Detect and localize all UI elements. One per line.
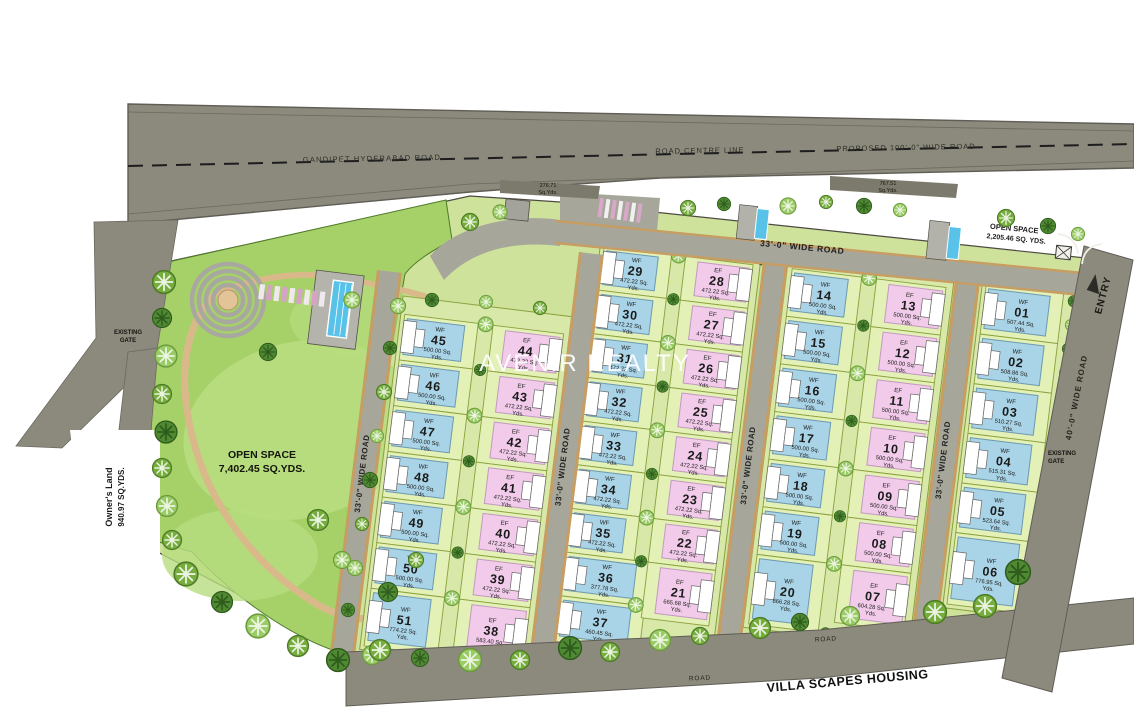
tree-icon (153, 309, 172, 328)
swimming-pool (308, 270, 365, 349)
plot-number: 18 (792, 478, 809, 494)
building-footprint (765, 581, 776, 600)
building-footprint (914, 346, 925, 365)
tree-icon (461, 213, 478, 230)
site-plan-canvas: OPEN SPACE7,402.45 SQ.YDS.WF45500.00 Sq.… (0, 0, 1134, 728)
plot-number: 22 (676, 536, 693, 552)
plot-number: 36 (597, 570, 614, 586)
building-footprint (587, 478, 598, 497)
centre-line-label: ROAD CENTRE LINE (655, 145, 745, 156)
owners-land-label: Owner's Land (104, 467, 114, 526)
pool-structure (926, 220, 962, 261)
plot-number: 21 (670, 585, 687, 601)
tree-icon (308, 510, 329, 531)
building-footprint (778, 475, 789, 494)
wedge-right (830, 176, 958, 198)
building-footprint (772, 522, 783, 541)
plot-number: 46 (425, 378, 442, 394)
plot-number: 40 (495, 526, 512, 542)
plot-number: 44 (517, 343, 534, 359)
tree-icon (493, 205, 507, 219)
pool-structure (736, 205, 769, 242)
plot-number: 05 (989, 504, 1006, 520)
tree-icon (246, 614, 270, 638)
svg-text:GATE: GATE (120, 338, 136, 344)
building-footprint (521, 481, 532, 500)
tree-icon (1040, 218, 1055, 233)
plot-number: 39 (489, 572, 506, 588)
building-footprint (920, 299, 931, 318)
tree-icon (153, 385, 172, 404)
plot-number: 30 (622, 307, 639, 323)
open-space-park-label: OPEN SPACE (228, 449, 296, 461)
tree-icon (893, 203, 906, 216)
open-space-park-area: 7,402.45 SQ.YDS. (219, 463, 305, 475)
plot-number: 14 (816, 288, 833, 304)
plot-04: WF04515.31 Sq.Yds. (963, 437, 1032, 485)
plot-21: EF21665.68 Sq.Yds. (655, 568, 715, 620)
plot-number: 01 (1013, 305, 1030, 321)
tree-icon (533, 301, 546, 314)
tree-icon (691, 627, 708, 644)
building-footprint (597, 391, 608, 410)
tree-icon (856, 198, 871, 213)
clubhouse-structure (504, 199, 530, 221)
tree-icon (717, 197, 730, 210)
building-footprint (963, 560, 974, 579)
building-footprint (790, 379, 801, 398)
owners-land: Owner's Land940.97 SQ.YDS. (70, 430, 160, 568)
tree-icon (347, 560, 362, 575)
plot-51: WF51774.22 Sq.Yds. (365, 592, 431, 647)
tree-icon (390, 298, 405, 313)
building-footprint (504, 624, 515, 643)
building-footprint (510, 572, 521, 591)
plot-05: WF05523.64 Sq.Yds. (956, 487, 1025, 535)
plot-number: 15 (810, 335, 827, 351)
tree-icon (974, 595, 997, 618)
plot-number: 03 (1001, 404, 1018, 420)
svg-text:Sq.Yds.: Sq.Yds. (878, 188, 898, 194)
road-label-south: ROAD (689, 675, 711, 683)
plot-number: 35 (595, 526, 612, 542)
tree-icon (155, 345, 177, 367)
plot-number: 19 (786, 526, 803, 542)
tree-icon (408, 552, 423, 567)
building-footprint (903, 442, 914, 461)
tree-icon (1071, 227, 1084, 240)
tree-icon (362, 472, 377, 487)
plot-number: 38 (483, 623, 500, 639)
building-footprint (603, 347, 614, 366)
tree-icon (601, 643, 620, 662)
existing-gate-east: EXISTING (1048, 451, 1076, 457)
plot-number: 49 (408, 515, 425, 531)
plot-number: 04 (995, 454, 1012, 470)
tree-icon (153, 271, 176, 294)
plot-number: 23 (681, 492, 698, 508)
tree-icon (355, 517, 368, 530)
plot-number: 42 (506, 435, 523, 451)
plot-number: 20 (779, 585, 796, 601)
owners-land-area: 940.97 SQ.YDS. (117, 467, 126, 526)
building-footprint (532, 390, 543, 409)
tree-icon (153, 459, 172, 478)
tree-icon (157, 496, 178, 517)
plot-19: WF19500.00 Sq.Yds. (758, 511, 819, 557)
tree-icon (680, 200, 695, 215)
tree-icon (750, 618, 771, 639)
building-footprint (408, 374, 419, 393)
tree-icon (997, 209, 1014, 226)
building-footprint (527, 435, 538, 454)
plot-number: 12 (894, 346, 911, 362)
tree-icon (841, 607, 860, 626)
building-footprint (592, 435, 603, 454)
plot-18: WF18500.00 Sq.Yds. (764, 463, 825, 509)
plot-number: 16 (804, 383, 821, 399)
tree-icon (212, 592, 233, 613)
plot-number: 27 (703, 317, 720, 333)
plot-02: WF02508.86 Sq.Yds. (975, 338, 1044, 386)
plot-number: 34 (600, 482, 617, 498)
building-footprint (570, 610, 581, 629)
plot-14: WF14500.00 Sq.Yds. (787, 273, 848, 319)
plot-11: EF11500.00 Sq.Yds. (873, 380, 934, 426)
building-footprint (995, 301, 1006, 320)
plot-17: WF17500.00 Sq.Yds. (769, 415, 830, 461)
plot-number: 09 (877, 489, 894, 505)
building-footprint (989, 351, 1000, 370)
tree-icon (259, 343, 276, 360)
wedge-right-area: 767.51 (880, 181, 897, 187)
building-footprint (576, 566, 587, 585)
tree-icon (650, 630, 671, 651)
tree-icon (924, 601, 947, 624)
plot-12: EF12500.00 Sq.Yds. (878, 332, 939, 378)
plot-15: WF15500.00 Sq.Yds. (781, 320, 842, 366)
villa-layout-site-plan: OPEN SPACE7,402.45 SQ.YDS.WF45500.00 Sq.… (0, 0, 1134, 728)
tree-icon (341, 603, 354, 616)
plot-number: 06 (982, 564, 999, 580)
building-footprint (909, 394, 920, 413)
plot-number: 41 (500, 480, 517, 496)
plot-number: 43 (512, 389, 529, 405)
building-footprint (386, 557, 397, 576)
plot-number: 28 (708, 274, 725, 290)
plot-number: 02 (1007, 355, 1024, 371)
building-footprint (977, 450, 988, 469)
building-footprint (613, 260, 624, 279)
plot-number: 07 (864, 589, 881, 605)
plot-number: 47 (419, 424, 436, 440)
plot-number: 11 (889, 393, 905, 409)
plot-number: 33 (605, 438, 622, 454)
svg-text:GATE: GATE (1048, 459, 1064, 465)
building-footprint (403, 420, 414, 439)
tree-icon (1006, 560, 1031, 585)
tree-icon (370, 640, 391, 661)
building-footprint (885, 589, 896, 608)
tree-icon (327, 649, 350, 672)
building-footprint (608, 304, 619, 323)
tree-icon (479, 295, 492, 308)
plot-08: EF08500.00 Sq.Yds. (855, 523, 916, 569)
building-footprint (801, 284, 812, 303)
building-footprint (391, 511, 402, 530)
building-footprint (891, 537, 902, 556)
plot-number: 48 (413, 470, 430, 486)
building-footprint (897, 489, 908, 508)
plot-number: 25 (692, 405, 709, 421)
building-footprint (380, 609, 391, 628)
existing-gate-west: EXISTING (114, 330, 142, 336)
plot-number: 32 (611, 395, 628, 411)
tree-icon (163, 531, 182, 550)
building-footprint (795, 332, 806, 351)
tree-icon (791, 613, 808, 630)
utility-box (1055, 245, 1071, 259)
plot-number: 13 (900, 298, 917, 314)
tree-icon (370, 429, 383, 442)
plot-number: 29 (627, 264, 644, 280)
plot-number: 10 (882, 441, 899, 457)
plot-03: WF03510.27 Sq.Yds. (969, 388, 1038, 436)
tree-icon (559, 637, 582, 660)
wedge-left-area: 276.71 (540, 183, 557, 189)
tree-icon (174, 562, 198, 586)
tree-icon (376, 384, 391, 399)
plot-13: EF13500.00 Sq.Yds. (884, 284, 945, 330)
tree-icon (511, 651, 530, 670)
tree-icon (780, 198, 796, 214)
building-footprint (397, 466, 408, 485)
tree-icon (155, 421, 177, 443)
plot-number: 26 (698, 361, 715, 377)
plot-number: 37 (592, 615, 609, 631)
plot-number: 24 (687, 448, 704, 464)
building-footprint (581, 522, 592, 541)
tree-icon (288, 636, 309, 657)
plot-number: 17 (798, 431, 815, 447)
plot-number: 31 (616, 351, 633, 367)
building-footprint (983, 400, 994, 419)
svg-text:Sq.Yds.: Sq.Yds. (538, 190, 558, 196)
building-footprint (414, 329, 425, 348)
plot-16: WF16500.00 Sq.Yds. (775, 368, 836, 414)
tree-icon (411, 649, 428, 666)
tree-icon (819, 195, 832, 208)
tree-icon (459, 649, 482, 672)
building-footprint (971, 499, 982, 518)
plot-10: EF10500.00 Sq.Yds. (867, 427, 928, 473)
building-footprint (784, 427, 795, 446)
tree-icon (383, 341, 396, 354)
plot-number: 08 (871, 536, 888, 552)
building-footprint (538, 344, 549, 363)
plot-number: 51 (396, 613, 413, 629)
tree-icon (379, 583, 398, 602)
building-footprint (516, 527, 527, 546)
tree-icon (425, 293, 438, 306)
plot-01: WF01507.44 Sq.Yds. (981, 288, 1050, 336)
plot-number: 45 (430, 333, 447, 349)
plot-09: EF09500.00 Sq.Yds. (861, 475, 922, 521)
tree-icon (344, 292, 360, 308)
